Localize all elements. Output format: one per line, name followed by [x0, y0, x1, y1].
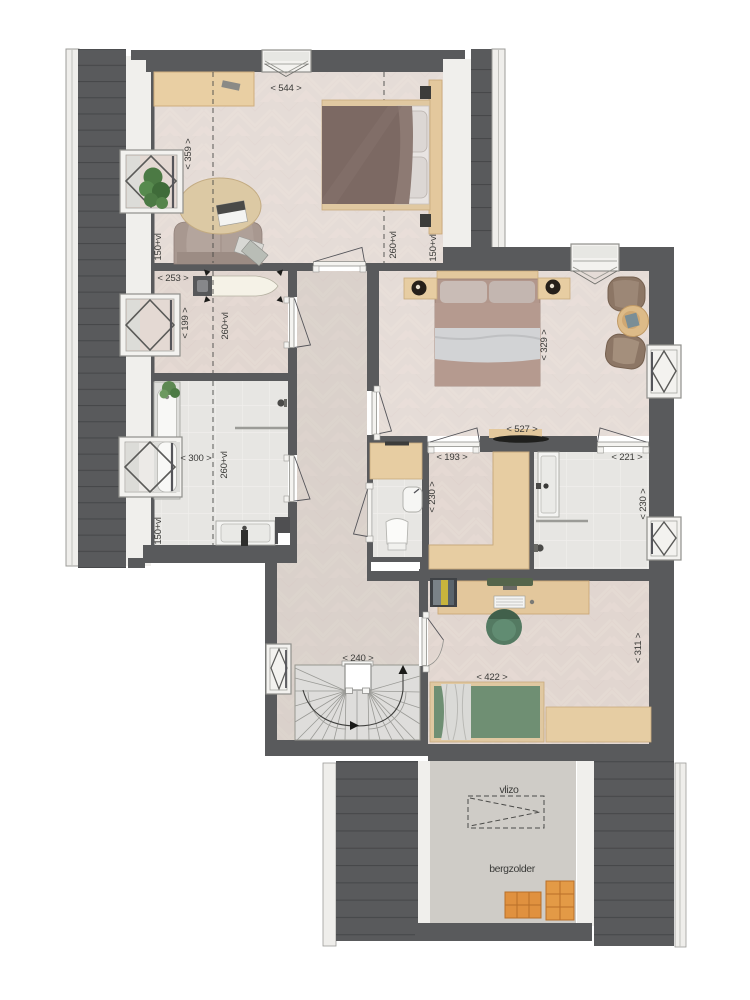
svg-text:< 544 >: < 544 >	[270, 83, 302, 94]
svg-text:< 230 >: < 230 >	[427, 481, 438, 513]
svg-text:< 240 >: < 240 >	[342, 653, 374, 664]
svg-text:< 300 >: < 300 >	[180, 453, 212, 464]
svg-text:< 221 >: < 221 >	[611, 452, 643, 463]
svg-text:< 422 >: < 422 >	[476, 672, 508, 683]
svg-text:260+vl: 260+vl	[388, 231, 399, 258]
svg-text:< 329 >: < 329 >	[539, 329, 550, 361]
svg-text:150+vl: 150+vl	[428, 234, 439, 261]
svg-text:260+vl: 260+vl	[220, 312, 231, 339]
svg-text:bergzolder: bergzolder	[489, 863, 536, 875]
svg-text:< 253 >: < 253 >	[157, 273, 189, 284]
svg-text:< 359 >: < 359 >	[183, 138, 194, 170]
svg-text:< 527 >: < 527 >	[506, 424, 538, 435]
svg-text:< 230 >: < 230 >	[638, 488, 649, 520]
svg-text:< 193 >: < 193 >	[436, 452, 468, 463]
svg-text:150+vl: 150+vl	[153, 233, 164, 260]
svg-text:260+vl: 260+vl	[219, 451, 230, 478]
svg-text:< 311 >: < 311 >	[633, 632, 644, 663]
svg-text:< 199 >: < 199 >	[180, 307, 191, 339]
svg-text:150+vl: 150+vl	[153, 517, 164, 544]
svg-text:vlizo: vlizo	[499, 784, 519, 796]
